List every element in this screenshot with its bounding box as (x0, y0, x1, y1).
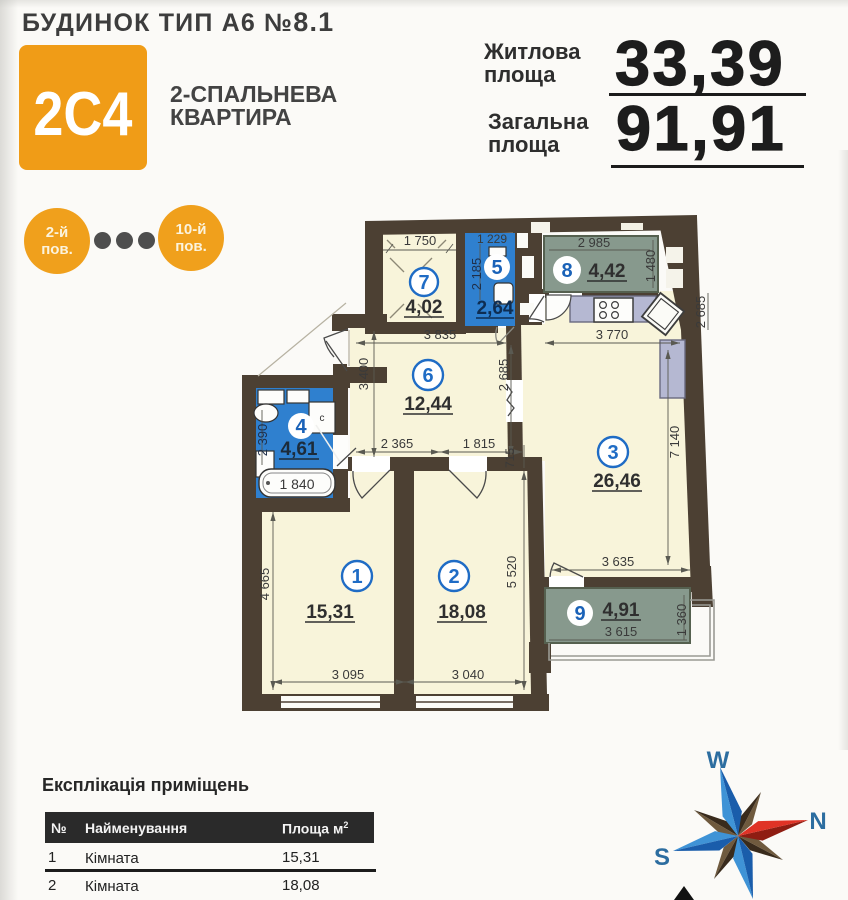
svg-text:4 665: 4 665 (257, 568, 272, 601)
svg-text:3 770: 3 770 (596, 327, 629, 342)
svg-text:2 985: 2 985 (578, 235, 611, 250)
svg-text:4,61: 4,61 (281, 439, 318, 460)
svg-text:3 400: 3 400 (356, 358, 371, 391)
svg-text:7: 7 (418, 272, 429, 294)
svg-text:3 615: 3 615 (605, 624, 638, 639)
svg-text:1 360: 1 360 (674, 604, 689, 637)
svg-text:2: 2 (448, 566, 459, 588)
svg-text:3 635: 3 635 (602, 554, 635, 569)
svg-text:8: 8 (561, 260, 572, 282)
svg-text:4: 4 (295, 416, 307, 438)
svg-text:5: 5 (491, 257, 502, 279)
svg-text:26,46: 26,46 (593, 471, 641, 492)
svg-text:3 095: 3 095 (332, 667, 365, 682)
svg-text:1 840: 1 840 (279, 476, 314, 492)
svg-text:2 390: 2 390 (255, 424, 270, 457)
svg-text:N: N (809, 808, 826, 835)
svg-text:15,31: 15,31 (306, 602, 354, 623)
svg-text:W: W (707, 747, 730, 774)
svg-text:3 040: 3 040 (452, 667, 485, 682)
svg-text:9: 9 (574, 603, 585, 625)
svg-text:4,91: 4,91 (603, 600, 640, 621)
svg-text:S: S (654, 844, 670, 871)
svg-text:715: 715 (503, 448, 517, 468)
svg-text:2 185: 2 185 (469, 258, 484, 291)
svg-text:7 140: 7 140 (667, 426, 682, 459)
svg-text:c: c (320, 413, 325, 424)
svg-text:2 685: 2 685 (693, 296, 708, 329)
svg-text:18,08: 18,08 (438, 602, 486, 623)
svg-text:3 835: 3 835 (424, 327, 457, 342)
svg-text:1 815: 1 815 (463, 436, 496, 451)
svg-text:3: 3 (607, 442, 618, 464)
svg-text:4,42: 4,42 (589, 261, 626, 282)
svg-text:1 750: 1 750 (404, 233, 437, 248)
svg-text:6: 6 (422, 365, 433, 387)
svg-text:4,02: 4,02 (406, 297, 443, 318)
svg-text:12,44: 12,44 (404, 394, 452, 415)
svg-text:2,64: 2,64 (477, 298, 514, 319)
svg-text:5 520: 5 520 (504, 556, 519, 589)
svg-text:2 365: 2 365 (381, 436, 414, 451)
svg-text:2 685: 2 685 (496, 359, 511, 392)
svg-text:1 480: 1 480 (643, 250, 658, 283)
svg-text:1 229: 1 229 (477, 232, 507, 246)
svg-text:1: 1 (351, 566, 362, 588)
